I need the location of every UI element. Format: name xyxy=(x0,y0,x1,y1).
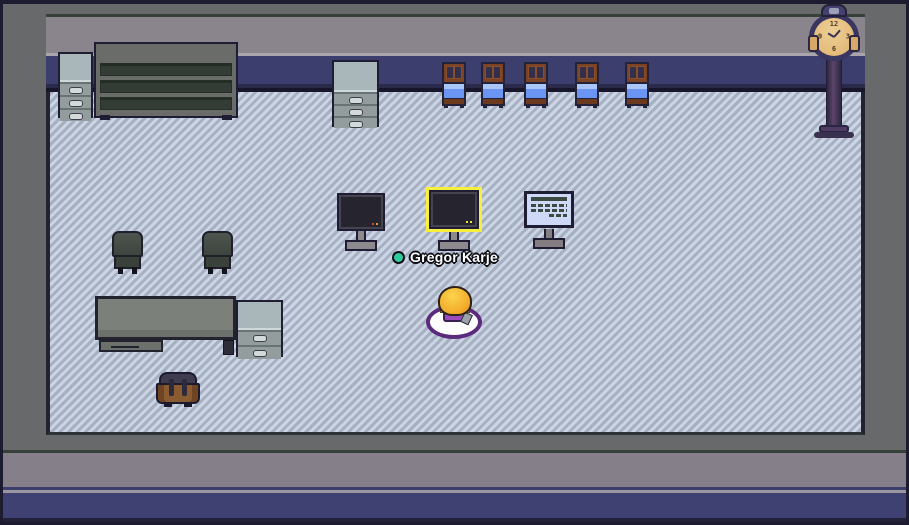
shelf-foot xyxy=(222,115,232,120)
monitor-center-selected[interactable] xyxy=(431,192,477,251)
bed-blanket xyxy=(444,89,464,98)
bed-leg xyxy=(526,104,530,108)
desk-leg xyxy=(223,340,234,355)
chair-seat xyxy=(204,257,231,269)
clock-side-knob xyxy=(849,35,860,52)
bed-blanket xyxy=(627,89,647,98)
bed xyxy=(524,62,548,106)
cabinet-top-surface xyxy=(238,302,281,330)
bed xyxy=(575,62,599,106)
shelf-slot xyxy=(100,63,232,76)
cabinet-top-surface xyxy=(60,54,91,82)
backpack-body xyxy=(156,383,200,404)
monitor-screen xyxy=(525,192,573,227)
headboard-panel xyxy=(454,66,462,79)
cabinet-top-surface xyxy=(334,62,377,92)
bed-blanket xyxy=(577,89,597,98)
screen-content-row xyxy=(531,204,567,207)
screen-title-bar xyxy=(531,197,567,201)
chair-leg xyxy=(208,267,213,274)
bed-mattress xyxy=(575,84,599,106)
bookshelf xyxy=(94,42,238,118)
bed-mattress xyxy=(625,84,649,106)
monitor-right[interactable] xyxy=(525,192,573,249)
bed-mattress xyxy=(481,84,505,106)
bed-leg xyxy=(593,104,597,108)
monitor-screen-highlighted xyxy=(431,192,477,227)
cabinet-drawer xyxy=(334,116,377,128)
monitor-screen xyxy=(339,195,383,229)
chair-back xyxy=(112,231,143,257)
bed-blanket xyxy=(483,89,503,98)
cabinet-drawer xyxy=(60,108,91,121)
bed-leg xyxy=(460,104,464,108)
bottom-wall-face xyxy=(0,493,909,518)
cabinet-drawer xyxy=(334,92,377,104)
headboard-panel xyxy=(446,66,454,79)
bed xyxy=(442,62,466,106)
clock-pillar xyxy=(826,57,842,127)
cabinet-drawer xyxy=(60,95,91,108)
office-chair xyxy=(202,231,233,269)
headboard-panel xyxy=(528,66,536,79)
headboard-panel xyxy=(579,66,587,79)
bottom-wall-top xyxy=(0,453,909,487)
bed xyxy=(481,62,505,106)
clock-hand xyxy=(828,32,835,37)
desk-top xyxy=(95,296,236,340)
bed-leg xyxy=(483,104,487,108)
cabinet-drawer xyxy=(60,82,91,95)
backpack xyxy=(156,372,200,404)
clock-numeral-12: 12 xyxy=(830,21,838,28)
bed-mattress xyxy=(524,84,548,106)
clock-face: 12 3 6 9 xyxy=(809,13,859,61)
player-nametag: Gregor Karje xyxy=(394,249,498,265)
grandfather-clock: 12 3 6 9 xyxy=(806,4,862,138)
backpack-strap xyxy=(182,379,187,396)
chair-leg xyxy=(132,267,137,274)
backpack-flap xyxy=(159,372,197,385)
bed-headboard xyxy=(442,62,466,84)
shelf-slot xyxy=(100,97,232,110)
screen-content-row xyxy=(549,214,567,217)
bed-leg xyxy=(577,104,581,108)
bed-mattress xyxy=(442,84,466,106)
bed-headboard xyxy=(625,62,649,84)
cabinet-drawer xyxy=(238,345,281,359)
status-dot-icon xyxy=(394,253,403,262)
bed-headboard xyxy=(524,62,548,84)
chair-back xyxy=(202,231,233,257)
bed-leg xyxy=(499,104,503,108)
bed-leg xyxy=(627,104,631,108)
filing-cabinet-left xyxy=(58,52,93,118)
chair-leg xyxy=(118,267,123,274)
clock-side-knob xyxy=(808,35,819,52)
game-viewport: 12 3 6 9 Gregor Karje xyxy=(0,0,909,525)
bed xyxy=(625,62,649,106)
monitor-stand-base xyxy=(533,238,565,249)
headboard-panel xyxy=(493,66,501,79)
chair-leg xyxy=(222,267,227,274)
cabinet-drawer xyxy=(334,104,377,116)
shelf-slot xyxy=(100,80,232,93)
monitor-stand-base xyxy=(345,240,377,251)
bed-leg xyxy=(444,104,448,108)
avatar-hair xyxy=(438,286,472,316)
player-avatar[interactable] xyxy=(436,286,474,328)
bed-leg xyxy=(643,104,647,108)
chair-seat xyxy=(114,257,141,269)
bed-blanket xyxy=(526,89,546,98)
desk-underside xyxy=(95,340,236,356)
bed-leg xyxy=(542,104,546,108)
headboard-panel xyxy=(536,66,544,79)
clock-crown xyxy=(821,4,847,17)
office-chair xyxy=(112,231,143,269)
filing-cabinet-center xyxy=(332,60,379,127)
player-name-label: Gregor Karje xyxy=(410,249,498,265)
clock-hand xyxy=(833,30,841,38)
clock-numeral-6: 6 xyxy=(832,46,836,53)
screen-content-row xyxy=(531,209,567,212)
backpack-strap xyxy=(169,379,174,396)
headboard-panel xyxy=(637,66,645,79)
cabinet-drawer xyxy=(238,330,281,345)
headboard-panel xyxy=(587,66,595,79)
headboard-panel xyxy=(629,66,637,79)
headboard-panel xyxy=(485,66,493,79)
desk-drawer xyxy=(99,340,163,352)
clock-base-plate xyxy=(814,132,854,138)
bed-headboard xyxy=(481,62,505,84)
desk-cabinet xyxy=(236,300,283,357)
desk xyxy=(95,296,236,356)
bed-headboard xyxy=(575,62,599,84)
shelf-foot xyxy=(100,115,110,120)
monitor-left[interactable] xyxy=(339,195,383,251)
